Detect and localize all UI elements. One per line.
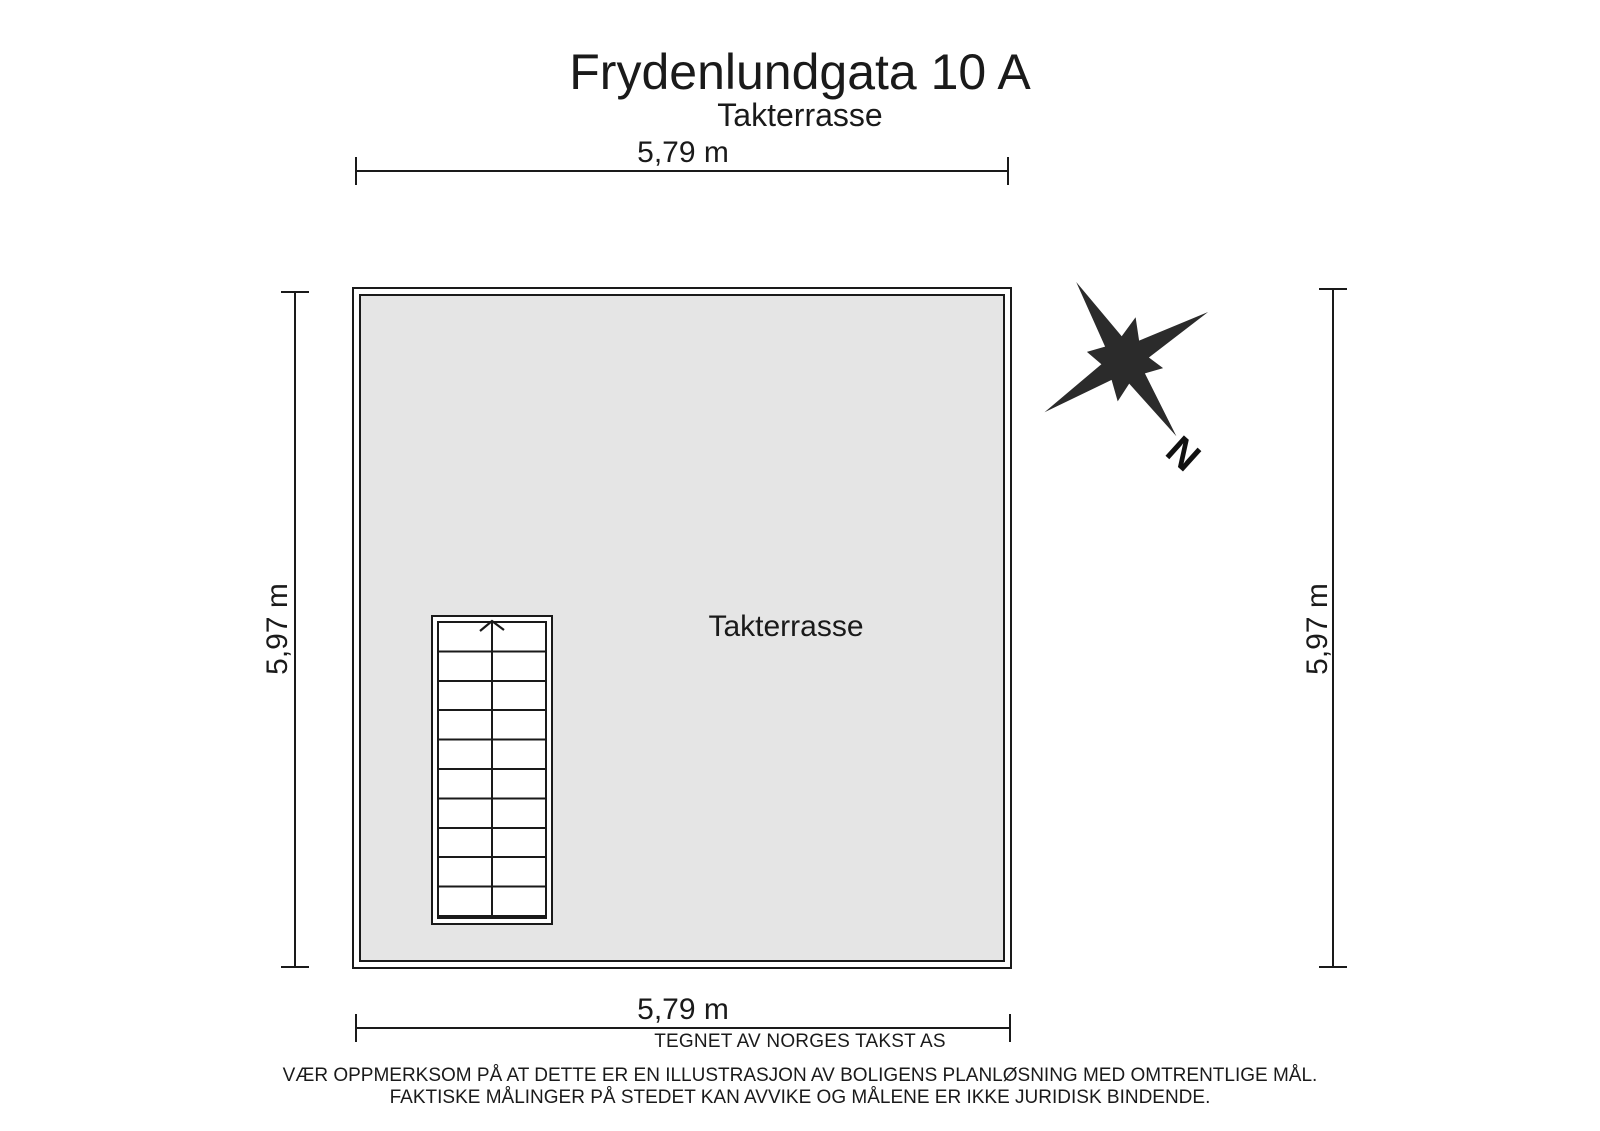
dimension-tick [355, 157, 357, 185]
footer-credit: TEGNET AV NORGES TAKST AS [0, 1031, 1600, 1053]
dimension-line-left [294, 292, 296, 967]
floorplan-canvas: Frydenlundgata 10 A Takterrasse 5,79 m 5… [0, 0, 1600, 1131]
dimension-line-right [1332, 289, 1334, 967]
page-title: Frydenlundgata 10 A [0, 46, 1600, 99]
footer-disclaimer-line1: VÆR OPPMERKSOM PÅ AT DETTE ER EN ILLUSTR… [0, 1065, 1600, 1087]
stairs-up-arrow-icon [477, 617, 507, 633]
dimension-tick [1007, 157, 1009, 185]
footer-disclaimer-line2: FAKTISKE MÅLINGER PÅ STEDET KAN AVVIKE O… [0, 1087, 1600, 1109]
dimension-label-right: 5,97 m [1301, 479, 1335, 779]
dimension-line-bottom [356, 1027, 1010, 1029]
dimension-label-left: 5,97 m [261, 479, 295, 779]
page-subtitle: Takterrasse [0, 99, 1600, 133]
dimension-label-top: 5,79 m [533, 136, 833, 170]
dimension-tick [281, 966, 309, 968]
room-label: Takterrasse [586, 610, 986, 644]
dimension-tick [1319, 288, 1347, 290]
dimension-line-top [356, 170, 1008, 172]
dimension-tick [281, 291, 309, 293]
stairs-treads [437, 621, 547, 919]
dimension-tick [1319, 966, 1347, 968]
dimension-label-bottom: 5,79 m [533, 993, 833, 1027]
